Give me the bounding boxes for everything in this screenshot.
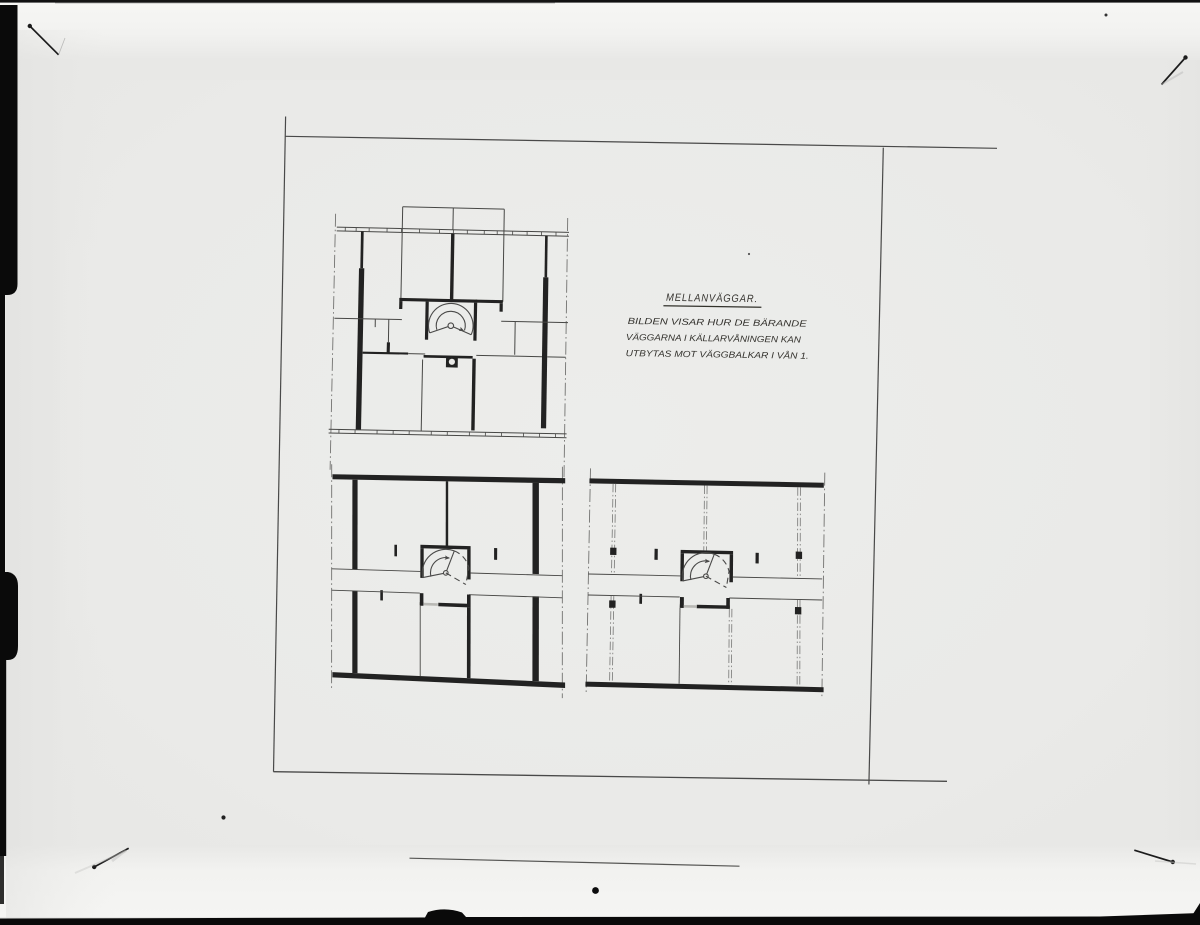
svg-text:MELLANVÄGGAR.: MELLANVÄGGAR.: [666, 292, 758, 305]
